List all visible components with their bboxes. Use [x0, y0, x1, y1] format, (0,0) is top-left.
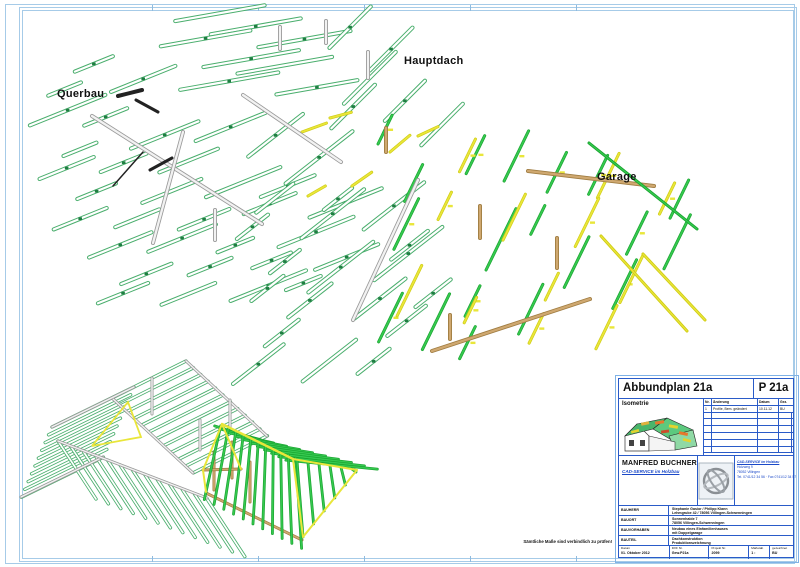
revision-cell [704, 426, 712, 432]
titleblock: Abbundplan 21a P 21a Isometrie Nr.Änder [618, 378, 794, 558]
revision-cell [792, 413, 793, 419]
revision-cell [792, 419, 793, 425]
revision-table: Nr.ÄnderungDatumGez.1Profile, Bem. geänd… [703, 399, 793, 455]
check-dimensions-note: Sämtliche Maße sind verbindlich zu prüfe… [470, 539, 612, 544]
revision-cell [779, 419, 792, 425]
garage-roof-assembly [203, 424, 377, 548]
beam-field-garage-green [378, 115, 690, 358]
project-row-value: Neubau eines Einfamilienhausesmit Doppel… [669, 526, 793, 535]
footer-cell: Datum01. Oktober 2012 [619, 546, 670, 559]
revision-cell [779, 440, 792, 446]
revision-cell [712, 433, 758, 439]
project-row-value: Stephanie Gasior / Philipp KlannLehmgrub… [669, 506, 793, 515]
revision-cell [712, 440, 758, 446]
label-hauptdach: Hauptdach [404, 55, 464, 67]
revision-cell [704, 433, 712, 439]
iso-thumbnail [621, 408, 701, 454]
drawing-sheet: { "labels": { "querbau": "Querbau", "hau… [0, 0, 800, 567]
footer-cell: Maßstab1 : [749, 546, 770, 559]
revision-cell [704, 440, 712, 446]
beam-field-mid-band [329, 7, 462, 146]
revision-cell [704, 419, 712, 425]
company-address-line: Tel. 0741/12 34 56 · Fax 0741/12 34 57 [737, 475, 796, 480]
company-name: MANFRED BUCHNER [622, 460, 697, 467]
revision-cell [792, 426, 793, 432]
revision-cell: Nr. [704, 399, 712, 405]
revision-cell [704, 447, 712, 453]
revision-cell: 10.11.12 [758, 406, 779, 412]
revision-cell [712, 447, 758, 453]
company-address: CAD-SERVICE im HolzbauHolzweg 978052 Vil… [735, 456, 796, 505]
label-garage: Garage [597, 171, 637, 183]
revision-cell: 1 [704, 406, 712, 412]
project-row-value: Sonnenhalde 778056 Villingen-Schwenninge… [669, 516, 793, 525]
revision-cell [704, 413, 712, 419]
plan-number: P 21a [753, 379, 793, 398]
project-table: BAUHERRStephanie Gasior / Philipp KlannL… [619, 506, 793, 546]
revision-cell: Gez. [779, 399, 793, 405]
revision-cell [779, 413, 792, 419]
project-row-label: BAUORT [619, 516, 669, 525]
revision-cell: Profile, Bem. geändert [712, 406, 758, 412]
revision-cell [758, 433, 779, 439]
project-row-label: BAUTEIL [619, 536, 669, 546]
titleblock-outer: Abbundplan 21a P 21a Isometrie Nr.Änder [615, 375, 799, 563]
footer-cell: Projekt Nr.2099 [709, 546, 749, 559]
revision-cell [792, 433, 793, 439]
revision-cell [712, 426, 758, 432]
revision-cell: Datum [758, 399, 779, 405]
company-tagline: CAD-SERVICE im Holzbau [622, 469, 697, 474]
revision-cell [779, 426, 792, 432]
footer-cell: gezeichnetBU [770, 546, 793, 559]
revision-cell [758, 426, 779, 432]
beam-field-querbau-top [161, 5, 358, 94]
footer-cell: DXF Nr.Gew.P21a [670, 546, 710, 559]
project-row-label: BAUHERR [619, 506, 669, 515]
project-row-value: DachkonstruktionProduktionszeichnung [669, 536, 793, 546]
revision-cell [758, 440, 779, 446]
revision-cell [712, 419, 758, 425]
revision-cell: BU [779, 406, 793, 412]
label-querbau: Querbau [57, 88, 104, 100]
project-row-label: BAUVORHABEN [619, 526, 669, 535]
revision-cell [758, 413, 779, 419]
iso-label: Isometrie [619, 399, 703, 407]
beam-field-hauptdach-main [233, 114, 451, 384]
revision-cell [758, 419, 779, 425]
revision-cell: Änderung [712, 399, 758, 405]
revision-cell [712, 413, 758, 419]
company-logo-icon [698, 461, 734, 501]
revision-cell [758, 447, 779, 453]
revision-cell [792, 447, 793, 453]
plan-title: Abbundplan 21a [619, 379, 753, 398]
revision-cell [792, 440, 793, 446]
revision-cell [779, 447, 792, 453]
footer-row: Datum01. Oktober 2012DXF Nr.Gew.P21aProj… [619, 546, 793, 559]
revision-cell [779, 433, 792, 439]
